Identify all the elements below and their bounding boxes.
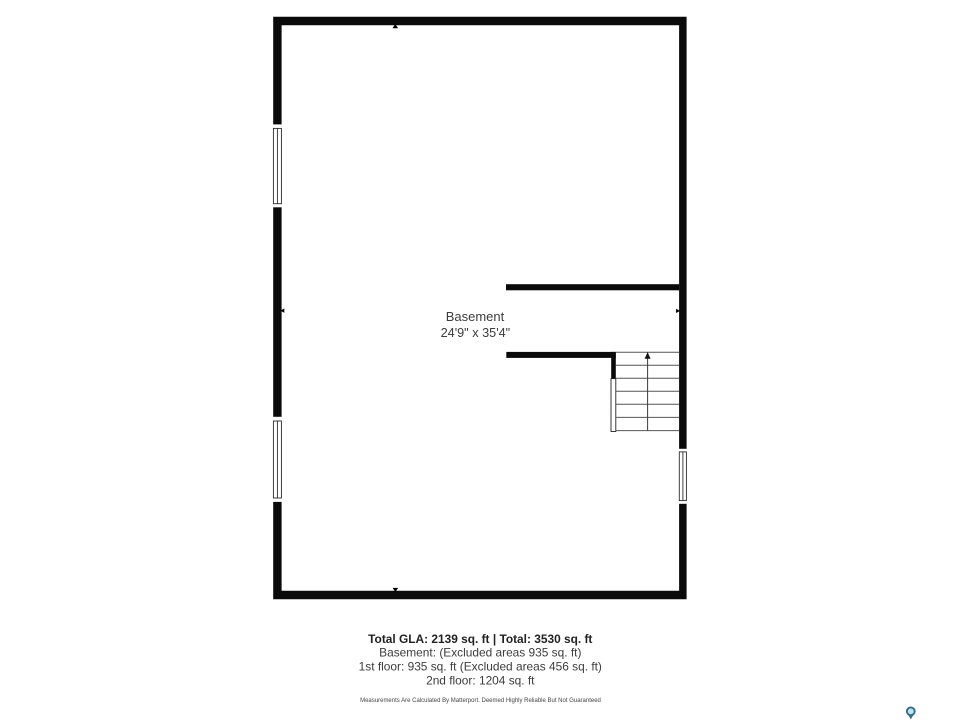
svg-text:2nd floor: 1204 sq. ft: 2nd floor: 1204 sq. ft [426, 674, 535, 688]
svg-text:Measurements Are Calculated By: Measurements Are Calculated By Matterpor… [360, 698, 601, 704]
svg-text:24'9" x 35'4": 24'9" x 35'4" [441, 326, 511, 340]
svg-text:Total GLA: 2139 sq. ft | Total: Total GLA: 2139 sq. ft | Total: 3530 sq.… [368, 632, 592, 646]
svg-text:1st floor: 935 sq. ft (Exclude: 1st floor: 935 sq. ft (Excluded areas 45… [359, 660, 602, 674]
svg-text:Basement: (Excluded areas 935: Basement: (Excluded areas 935 sq. ft) [379, 646, 581, 660]
svg-text:Basement: Basement [446, 309, 505, 324]
